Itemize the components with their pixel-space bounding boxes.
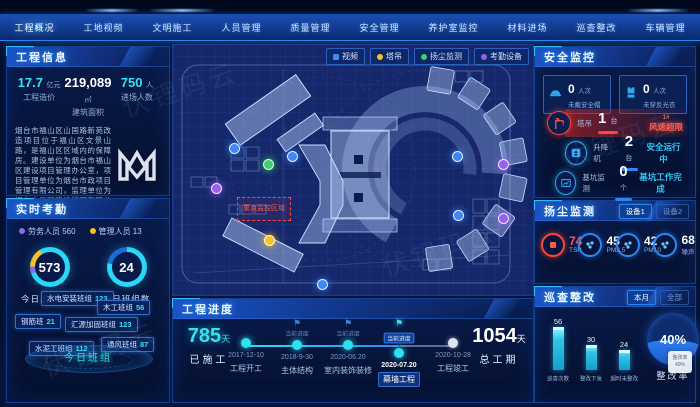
bar-label: 整改下发 [580,374,602,383]
decor-glow-line [150,9,214,12]
team-tag-2[interactable]: 木工班组56 [97,300,150,315]
bar-value: 30 [587,335,595,344]
milestone-dot [241,338,251,348]
progress-panel: 工程进度 785天 已施工 1054天 总工期 2017-12-10工程开工⚑当… [172,298,534,403]
stat-label: 建筑面积 [64,107,112,118]
company-logo [111,126,163,202]
attendance-header: 实时考勤 [7,199,169,219]
panel-title: 实时考勤 [16,201,68,217]
project-body: 烟台市福山区山国路新苑改造项目位于福山区文景山路，是福山区区域内的保障房。建设单… [7,122,169,202]
panel-title: 扬尘监测 [544,203,596,219]
project-stat-3: 750 人进场人数 [113,75,161,118]
panel-title: 安全监控 [544,49,596,65]
map-marker-视频[interactable] [317,279,328,290]
map-marker-视频[interactable] [229,143,240,154]
progress-header: 工程进度 [173,299,533,319]
bar-label: 超时未整改 [610,374,638,383]
panel-title: 工程进度 [182,301,234,317]
nav-item-8[interactable]: 材料进场 [507,21,547,34]
milestone-5[interactable]: 2020-10-28工程竣工 [421,319,485,374]
map-marker-扬尘监测[interactable] [263,159,274,170]
nav-item-10[interactable]: 车辆管理 [645,21,685,34]
donut-ring: 573 [30,247,70,287]
dust-metric-TSP: 74TSP [541,233,577,257]
red-zone[interactable]: 重点监控区域 [237,197,291,221]
map-filter-塔吊[interactable]: 塔吊 [370,48,409,65]
milestone-date: 2020-10-28 [421,352,485,359]
sensor-icon [578,233,602,257]
team-tag-3[interactable]: 钢筋班21 [15,314,61,329]
gauge-tooltip: 整改率 40% [668,351,692,373]
helmet-icon [549,86,562,104]
tooltip-line2: 40% [675,362,685,369]
bar-column [586,345,597,370]
top-nav: 工程概况工地视频文明施工人员管理质量管理安全管理养护室监控材料进场巡查整改车辆管… [0,14,700,41]
project-stat-1: 17.7 亿元工程造价 [15,75,63,118]
total-days-unit: 天 [517,334,526,344]
bar-label: 巡查次数 [547,374,569,383]
safety-row-塔吊: 塔吊1 台1#风速超限 [547,109,691,137]
attendance-legend: 劳务人员 560管理人员 13 [7,219,169,237]
panel-title: 巡查整改 [544,289,596,305]
milestone-label: 工程竣工 [421,363,485,374]
nav-item-7[interactable]: 养护室监控 [428,21,478,34]
nav-item-4[interactable]: 人员管理 [221,21,261,34]
nav-item-5[interactable]: 质量管理 [290,21,330,34]
nav-item-6[interactable]: 安全管理 [359,21,399,34]
crane-icon [547,111,571,135]
team-tag-4[interactable]: 汇源加固班组123 [65,317,138,332]
bar-column [553,327,564,370]
dust-metric-噪声: 68噪声 [653,233,689,257]
donut-ring: 24 [107,247,147,287]
dust-tab-2[interactable]: 设备2 [656,204,689,219]
today-teams-label: 今日班组 [7,349,169,364]
blueprint-drawing [173,59,533,296]
inspection-tabs: 本月全部 [627,290,689,305]
project-description: 烟台市福山区山国路新苑改造项目位于福山区文景山路，是福山区区域内的保障房。建设单… [15,126,111,202]
map-marker-视频[interactable] [453,210,464,221]
map-marker-视频[interactable] [287,151,298,162]
map-filter-视频[interactable]: 视频 [326,48,365,65]
project-info-header: 工程信息 [7,47,169,67]
m-logo-icon [114,141,160,187]
nav-item-3[interactable]: 文明施工 [152,21,192,34]
dust-panel: 扬尘监测 设备1设备2 74TSP45PM2.542PM1068噪声 [534,200,696,284]
map-marker-考勤设备[interactable] [498,213,509,224]
milestone-caption: 当前进度 [384,333,415,344]
safety-header: 安全监控 [535,47,695,67]
milestone-dot [394,348,404,358]
project-info-panel: 工程信息 17.7 亿元工程造价219,089 ㎡建筑面积750 人进场人数 烟… [6,46,170,196]
dashboard-root: 工程概况工地视频文明施工人员管理质量管理安全管理养护室监控材料进场巡查整改车辆管… [0,0,700,407]
site-map[interactable]: 视频塔吊扬尘监测考勤设备 [172,44,534,296]
milestone-dot [292,340,302,350]
stat-value: 750 人 [113,75,161,90]
top-decoration [0,0,700,14]
milestone-label: 幕墙工程 [378,372,420,387]
safety-panel: 安全监控 0 人次未戴安全帽0 人次未穿反光衣 塔吊1 台1#风速超限升降机2 … [534,46,696,198]
panel-title: 工程信息 [16,49,68,65]
map-marker-考勤设备[interactable] [498,159,509,170]
dust-header: 扬尘监测 设备1设备2 [535,201,695,221]
legend-item-2: 管理人员 13 [90,226,142,237]
dust-metric-PM10: 42PM10 [616,233,652,257]
milestone-dot [448,338,458,348]
inspection-bar-chart: 56巡查次数30整改下发24超时未整改 [543,317,639,383]
bar-超时未整改: 24超时未整改 [609,317,639,383]
inspection-tab-2[interactable]: 全部 [660,290,689,305]
hoist-icon [565,141,587,165]
nav-item-2[interactable]: 工地视频 [83,21,123,34]
stat-label: 进场人数 [113,92,161,103]
map-filter-chips: 视频塔吊扬尘监测考勤设备 [326,48,529,65]
legend-item-1: 劳务人员 560 [19,226,76,237]
sensor-icon [653,233,677,257]
decor-glow-line [86,9,138,12]
dust-metrics: 74TSP45PM2.542PM1068噪声 [535,221,695,257]
donut-value: 24 [107,247,147,287]
dust-tab-1[interactable]: 设备1 [619,204,652,219]
dust-metric-PM2.5: 45PM2.5 [578,233,614,257]
project-stats: 17.7 亿元工程造价219,089 ㎡建筑面积750 人进场人数 [7,67,169,122]
map-marker-塔吊[interactable] [264,235,275,246]
map-filter-扬尘监测[interactable]: 扬尘监测 [414,48,469,65]
decor-glow-line [628,9,688,12]
map-marker-考勤设备[interactable] [211,183,222,194]
dust-tabs: 设备1设备2 [619,204,689,219]
vest-icon [625,86,637,104]
nav-item-1[interactable]: 工程概况 [14,21,54,34]
bar-value: 24 [620,340,628,349]
stat-value: 219,089 ㎡ [64,75,112,105]
safety-boxes: 0 人次未戴安全帽0 人次未穿反光衣 [535,67,695,114]
donut-value: 573 [30,247,70,287]
stat-value: 17.7 亿元 [15,75,63,90]
bar-巡查次数: 56巡查次数 [543,317,573,383]
south-building [223,218,303,272]
bar-value: 56 [554,317,562,326]
attendance-panel: 实时考勤 劳务人员 560管理人员 13 573今日出工人数24今日班组数 水电… [6,198,170,403]
map-marker-视频[interactable] [452,151,463,162]
bar-整改下发: 30整改下发 [576,317,606,383]
inspection-tab-1[interactable]: 本月 [627,290,656,305]
nav-item-9[interactable]: 巡查整改 [576,21,616,34]
safety-row-基坑监测: 基坑监测0 个基坑工作完成 [555,169,691,197]
inspection-panel: 巡查整改 本月全部 56巡查次数30整改下发24超时未整改 40% 整改率 整改… [534,286,696,403]
milestone-dot [343,340,353,350]
sensor-icon [616,233,640,257]
sensor-icon [541,233,565,257]
bar-column [619,350,630,370]
map-filter-考勤设备[interactable]: 考勤设备 [474,48,529,65]
tooltip-line1: 整改率 [672,355,687,362]
safety-row-升降机: 升降机2 台安全运行中 [565,139,691,167]
inspection-header: 巡查整改 本月全部 [535,287,695,307]
stat-label: 工程造价 [15,92,63,103]
project-stat-2: 219,089 ㎡建筑面积 [64,75,112,118]
